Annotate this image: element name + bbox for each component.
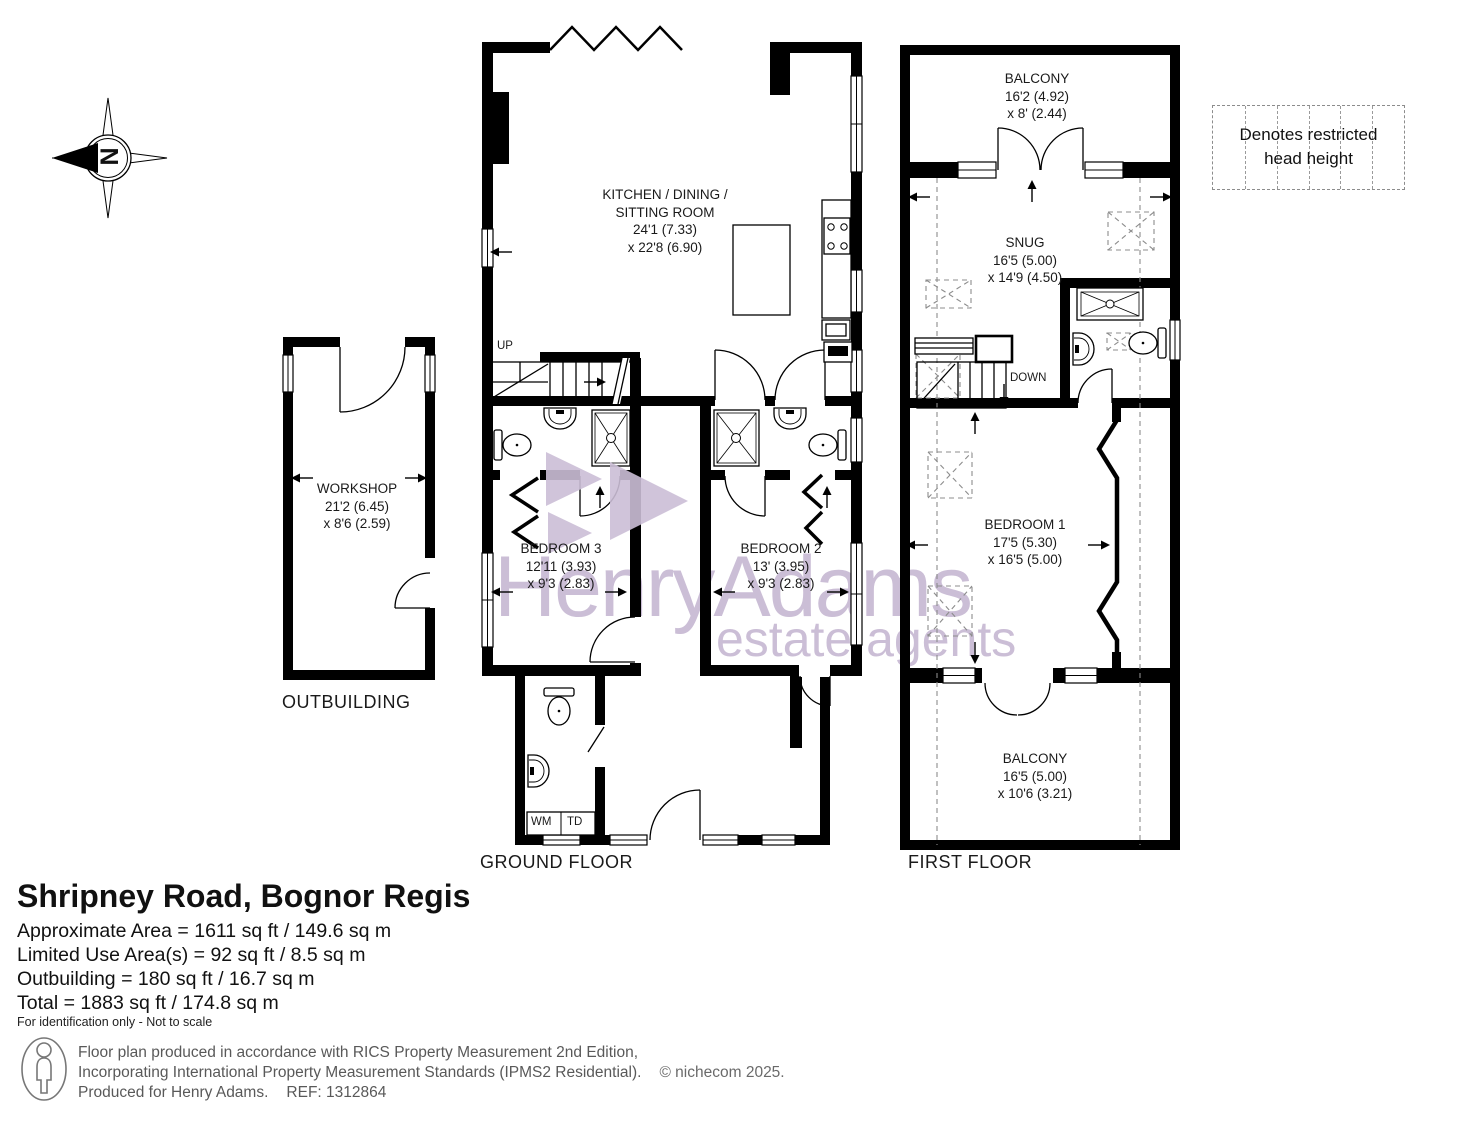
footer-line3: Produced for Henry Adams. <box>78 1084 268 1101</box>
total-area-line: Total = 1883 sq ft / 174.8 sq m <box>17 992 279 1015</box>
legend-restricted-height: Denotes restricted head height <box>1212 105 1405 190</box>
outbuilding-label: OUTBUILDING <box>282 692 411 713</box>
person-icon <box>20 1036 68 1102</box>
room-name: KITCHEN / DINING / SITTING ROOM <box>590 186 740 221</box>
window <box>851 350 862 392</box>
window <box>610 835 647 845</box>
window <box>943 668 975 683</box>
toilet-icon <box>809 430 846 460</box>
room-name: BEDROOM 2 <box>706 540 856 558</box>
dimension-arrow-icon <box>1028 180 1037 202</box>
room-label-bedroom2: BEDROOM 2 13' (3.95) x 9'3 (2.83) <box>706 540 856 593</box>
toilet-icon <box>1129 328 1166 358</box>
ground-floor-label: GROUND FLOOR <box>480 852 633 873</box>
dimension-arrow-icon <box>823 486 832 508</box>
window <box>425 355 435 392</box>
dimension-arrow-icon <box>596 486 605 508</box>
door-arc <box>985 128 1112 715</box>
approximate-area-line: Approximate Area = 1611 sq ft / 149.6 sq… <box>17 920 391 943</box>
room-dim: 12'11 (3.93) <box>486 558 636 576</box>
room-label-bedroom1: BEDROOM 1 17'5 (5.30) x 16'5 (5.00) <box>950 516 1100 569</box>
room-dim: 16'5 (5.00) <box>955 768 1115 786</box>
watermark-logo-triangles <box>546 452 688 554</box>
window <box>1065 668 1097 683</box>
shower-icon <box>592 410 630 466</box>
open-wall-zigzag <box>550 27 682 50</box>
limited-use-area-line: Limited Use Area(s) = 92 sq ft / 8.5 sq … <box>17 944 365 967</box>
window <box>283 355 293 392</box>
reference-number: REF: 1312864 <box>286 1084 386 1101</box>
window <box>958 162 996 178</box>
room-dim: x 9'3 (2.83) <box>486 575 636 593</box>
room-label-kitchen: KITCHEN / DINING / SITTING ROOM 24'1 (7.… <box>590 186 740 256</box>
ground-floor-plan <box>482 27 862 846</box>
room-dim: 16'2 (4.92) <box>962 88 1112 106</box>
sink-icon <box>1073 333 1094 365</box>
footer-line2-row: Incorporating International Property Mea… <box>78 1063 785 1083</box>
disclaimer-text: For identification only - Not to scale <box>17 1015 212 1029</box>
room-name: BALCONY <box>962 70 1112 88</box>
room-label-balcony-front: BALCONY 16'2 (4.92) x 8' (2.44) <box>962 70 1112 123</box>
stairs-down <box>915 336 1012 408</box>
room-dim: 24'1 (7.33) <box>590 221 740 239</box>
kitchen-fixtures <box>733 200 852 362</box>
footer-line1: Floor plan produced in accordance with R… <box>78 1043 785 1063</box>
window <box>762 835 795 845</box>
ensuite-bedroom3-fixtures <box>494 408 630 466</box>
room-name: BALCONY <box>955 750 1115 768</box>
sink-icon <box>544 408 576 429</box>
window <box>851 76 862 172</box>
kitchen-sink-icon <box>822 320 850 340</box>
room-dim: x 16'5 (5.00) <box>950 551 1100 569</box>
room-dim: x 22'8 (6.90) <box>590 239 740 257</box>
oven-icon <box>824 342 852 362</box>
washing-machine-label: WM <box>531 816 551 828</box>
room-dim: 17'5 (5.30) <box>950 534 1100 552</box>
page-title: Shripney Road, Bognor Regis <box>17 878 470 915</box>
dimension-arrow-icon <box>908 193 930 202</box>
room-name: BEDROOM 1 <box>950 516 1100 534</box>
first-floor-bathroom-fixtures <box>1073 288 1166 365</box>
window <box>1170 320 1180 360</box>
sink-icon <box>774 408 806 429</box>
stair-direction-arrow-icon <box>584 378 606 387</box>
dimension-arrow-icon <box>971 642 980 664</box>
dimension-arrow-icon <box>971 412 980 434</box>
room-name: SNUG <box>950 234 1100 252</box>
room-name: WORKSHOP <box>287 480 427 498</box>
room-dim: x 10'6 (3.21) <box>955 785 1115 803</box>
room-dim: 16'5 (5.00) <box>950 252 1100 270</box>
room-dim: 13' (3.95) <box>706 558 856 576</box>
room-label-snug: SNUG 16'5 (5.00) x 14'9 (4.50) <box>950 234 1100 287</box>
tumble-dryer-label: TD <box>567 816 582 828</box>
copyright: © nichecom 2025. <box>659 1064 784 1081</box>
kitchen-island <box>733 225 790 315</box>
window <box>851 270 862 312</box>
wc-utility-fixtures <box>527 688 595 835</box>
window <box>482 229 493 267</box>
footer-text: Floor plan produced in accordance with R… <box>78 1043 785 1103</box>
room-dim: x 14'9 (4.50) <box>950 269 1100 287</box>
stairs-up-label: UP <box>497 340 513 352</box>
dimension-arrow-icon <box>1150 193 1172 202</box>
compass-north-letter: N <box>94 141 123 173</box>
outbuilding-area-line: Outbuilding = 180 sq ft / 16.7 sq m <box>17 968 315 991</box>
toilet-icon <box>544 688 574 725</box>
room-label-balcony-rear: BALCONY 16'5 (5.00) x 10'6 (3.21) <box>955 750 1115 803</box>
first-floor-plan <box>900 45 1180 850</box>
footer-line2: Incorporating International Property Mea… <box>78 1064 641 1081</box>
shower-icon <box>714 410 759 466</box>
room-dim: 21'2 (6.45) <box>287 498 427 516</box>
room-label-bedroom3: BEDROOM 3 12'11 (3.93) x 9'3 (2.83) <box>486 540 636 593</box>
stairs-down-label: DOWN <box>1010 372 1046 384</box>
room-dim: x 9'3 (2.83) <box>706 575 856 593</box>
toilet-icon <box>494 430 531 460</box>
floorplan-page: HenryAdams estate agents <box>0 0 1477 1123</box>
bath-icon <box>1077 288 1143 320</box>
bifold-door <box>512 478 538 512</box>
hob-icon <box>824 218 850 254</box>
window <box>1085 162 1123 178</box>
first-floor-label: FIRST FLOOR <box>908 852 1032 873</box>
window <box>543 835 580 845</box>
footer-line3-row: Produced for Henry Adams.REF: 1312864 <box>78 1083 785 1103</box>
ground-floor-walls <box>482 42 862 845</box>
sink-icon <box>528 755 549 787</box>
window <box>851 418 862 462</box>
ensuite-bedroom2-fixtures <box>714 408 846 466</box>
window <box>703 835 738 845</box>
legend-text: Denotes restricted head height <box>1213 123 1404 171</box>
room-name: BEDROOM 3 <box>486 540 636 558</box>
room-dim: x 8'6 (2.59) <box>287 515 427 533</box>
room-label-workshop: WORKSHOP 21'2 (6.45) x 8'6 (2.59) <box>287 480 427 533</box>
room-dim: x 8' (2.44) <box>962 105 1112 123</box>
